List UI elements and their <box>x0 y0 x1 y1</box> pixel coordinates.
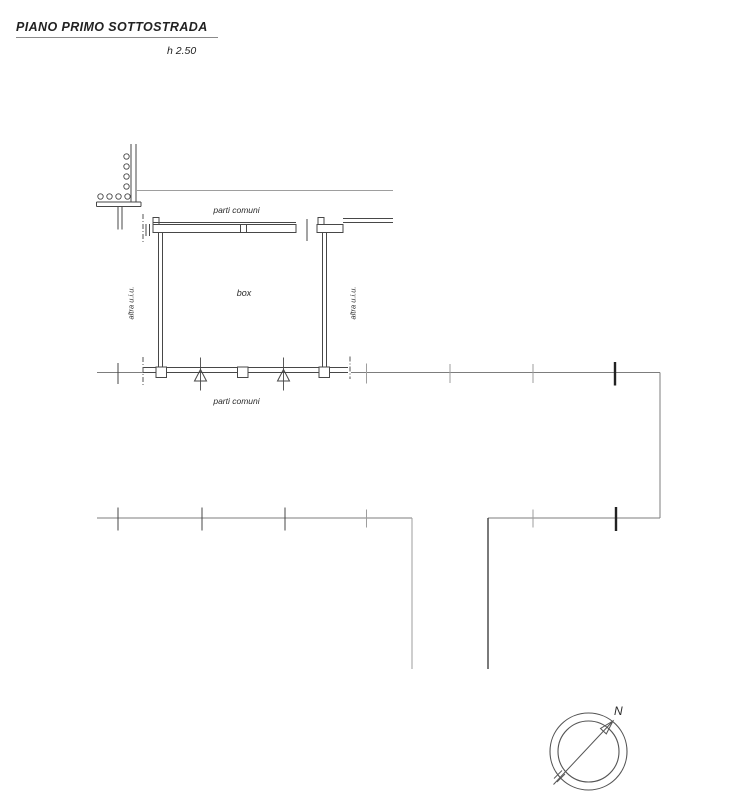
label-altra-uiu-left: altra u.i.u. <box>127 287 136 320</box>
lower-boundary <box>97 507 660 669</box>
pillar <box>238 367 249 378</box>
garage-door-leaf <box>317 225 343 233</box>
right-wall <box>323 233 327 369</box>
label-parti-comuni-bottom: parti comuni <box>212 396 260 406</box>
north-arrow-icon: N <box>550 704 627 790</box>
pillar <box>156 367 167 378</box>
label-altra-uiu-right: altra u.i.u. <box>349 287 358 320</box>
garage-door-leaf <box>153 225 296 233</box>
stair-hatch-wall <box>97 144 142 230</box>
left-wall <box>159 233 163 369</box>
bottom-wall <box>97 357 660 391</box>
floor-plan-drawing: parti comuni box altra u. <box>0 0 755 800</box>
garage-door-wall <box>143 214 393 244</box>
floor-plan-page: PIANO PRIMO SOTTOSTRADA h 2.50 pa <box>0 0 755 800</box>
label-parti-comuni-top: parti comuni <box>212 205 260 215</box>
north-label: N <box>614 704 623 718</box>
pillar <box>319 367 330 378</box>
room-label-box: box <box>237 288 252 298</box>
